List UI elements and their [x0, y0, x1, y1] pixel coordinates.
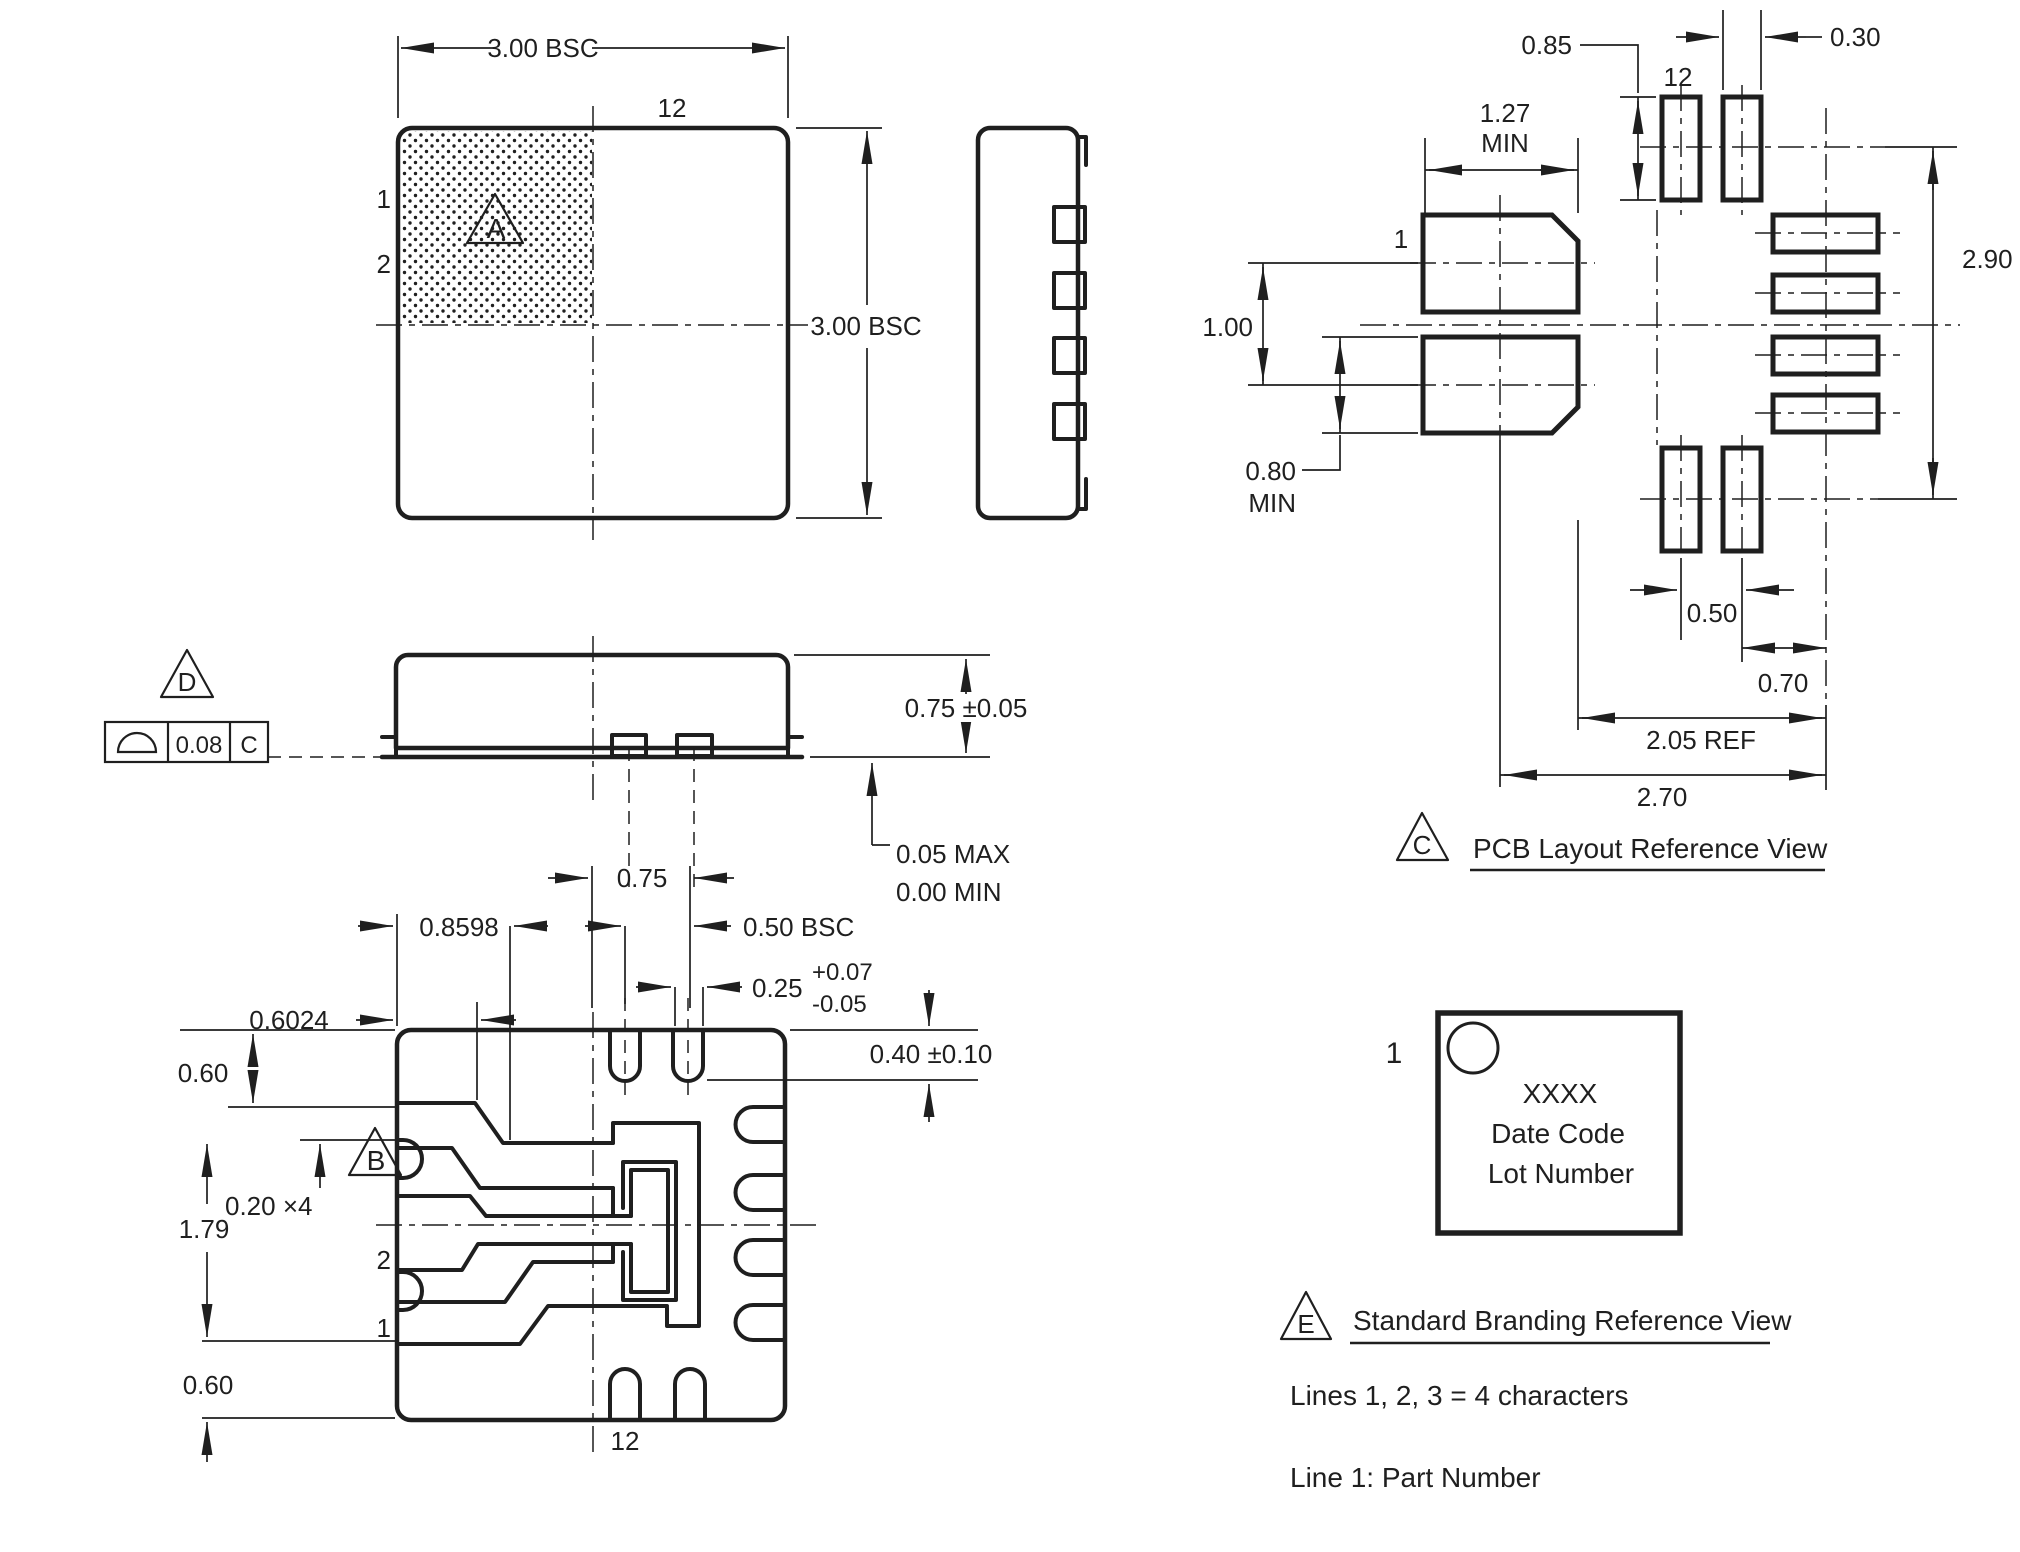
- flag-d-label: D: [178, 667, 197, 697]
- dim-big-pad-pitch: 1.00: [1202, 312, 1253, 342]
- right-slot: [736, 1240, 785, 1275]
- leadframe-mid-lead: [398, 1196, 631, 1270]
- side-view-body: [978, 128, 1078, 518]
- dim-span-h: 2.70: [1637, 782, 1688, 812]
- dim-line: [1248, 263, 1418, 385]
- dim-lead-offset: 0.8598: [419, 912, 499, 942]
- pcb-pin1-label: 1: [1394, 224, 1408, 254]
- bottom-view-pin2-label: 2: [377, 1245, 391, 1275]
- dim-big-pad-width-qual: MIN: [1248, 488, 1296, 518]
- dim-big-pad-len: 1.27: [1480, 98, 1531, 128]
- bottom-view-pin1-label: 1: [377, 1313, 391, 1343]
- bottom-slot: [610, 1369, 640, 1418]
- extension-lines: [1723, 10, 1761, 90]
- branding-note2: Line 1: Part Number: [1290, 1462, 1541, 1493]
- package-drawing-page: A 1 2 12 3.00 BSC 3.00 BSC: [0, 0, 2020, 1552]
- dim-body-height: 0.75 ±0.05: [905, 693, 1028, 723]
- dim-big-pad-len-qual: MIN: [1481, 128, 1529, 158]
- leadframe-top-lead: [398, 1103, 613, 1188]
- side-lead: [1054, 338, 1085, 373]
- flag-a-label: A: [487, 213, 506, 244]
- extension-lines: [397, 914, 625, 1140]
- dim-standoff-min: 0.00 MIN: [896, 877, 1002, 907]
- dim-big-pad-width: 0.80: [1245, 456, 1296, 486]
- dim-jog: 0.20 ×4: [225, 1191, 312, 1221]
- pcb-view-title: PCB Layout Reference View: [1473, 833, 1828, 864]
- dim-top-width: 3.00 BSC: [487, 33, 598, 63]
- side-view: [978, 128, 1086, 518]
- dim-slot-depth: 0.40 ±0.10: [870, 1039, 993, 1069]
- dim-slot-width: 0.25: [752, 973, 803, 1003]
- mid-lead-t-head: [631, 1170, 668, 1292]
- dim-pitch: 0.50: [1687, 598, 1738, 628]
- mark-line2: Date Code: [1491, 1118, 1625, 1149]
- left-edge-bump: [398, 1272, 422, 1310]
- side-lead: [1054, 273, 1085, 308]
- branding-view: 1 XXXX Date Code Lot Number E Standard B…: [1281, 1013, 1792, 1493]
- bottom-view: B 2 1 12 0.75 0.8598 0.50 BSC 0.6024 0.2…: [178, 863, 996, 1462]
- pcb-pin12-label: 12: [1664, 62, 1693, 92]
- dim-standoff-max: 0.05 MAX: [896, 839, 1010, 869]
- branding-view-title: Standard Branding Reference View: [1353, 1305, 1792, 1336]
- dim-lead-span: 1.79: [179, 1214, 230, 1244]
- dim-pad-len: 0.85: [1521, 30, 1572, 60]
- surface-profile-icon: [118, 733, 156, 752]
- side-lead: [1054, 207, 1085, 242]
- dim-pad-pitch: 0.75: [617, 863, 668, 893]
- front-view-body: [396, 655, 788, 748]
- slot-centerlines: [625, 998, 688, 1095]
- dim-pitch: 0.50 BSC: [743, 912, 854, 942]
- top-view: A 1 2 12 3.00 BSC 3.00 BSC: [376, 33, 928, 540]
- dim-line: [1302, 337, 1418, 470]
- dim-top-clear: 0.60: [178, 1058, 229, 1088]
- drawing-canvas: A 1 2 12 3.00 BSC 3.00 BSC: [0, 0, 2020, 1552]
- dim-span-v: 2.90: [1962, 244, 2013, 274]
- top-view-pin1-label: 1: [377, 184, 391, 214]
- left-edge-bump: [398, 1140, 422, 1178]
- dim-ref: 2.05 REF: [1646, 725, 1756, 755]
- leadframe-pin1-lead: [398, 1262, 667, 1344]
- top-view-pin12-label: 12: [658, 93, 687, 123]
- mark-line3: Lot Number: [1488, 1158, 1634, 1189]
- flag-c-label: C: [1413, 830, 1432, 860]
- dim-bottom-clear: 0.60: [183, 1370, 234, 1400]
- mark-line1: XXXX: [1523, 1078, 1598, 1109]
- dim-center-offset: 0.70: [1758, 668, 1809, 698]
- pcb-layout-view: 0.85 12 0.30 1.27 MIN 1 1.00 0.80 MIN 2.…: [1202, 10, 2012, 870]
- dim-side-height: 3.00 BSC: [810, 311, 921, 341]
- right-slot: [736, 1175, 785, 1210]
- right-slot: [736, 1305, 785, 1340]
- pin1-dot-icon: [1448, 1023, 1498, 1073]
- flag-e-label: E: [1297, 1309, 1314, 1339]
- side-lead: [1054, 404, 1085, 439]
- dim-slot-width-tol-plus: +0.07: [812, 959, 873, 986]
- bottom-view-pin12-label: 12: [611, 1426, 640, 1456]
- branding-pin1-label: 1: [1386, 1037, 1403, 1070]
- dim-pad-width: 0.30: [1830, 22, 1881, 52]
- branding-note1: Lines 1, 2, 3 = 4 characters: [1290, 1380, 1629, 1411]
- dim-line: [1878, 147, 1957, 499]
- top-view-pin2-label: 2: [377, 249, 391, 279]
- fcf-datum: C: [240, 732, 257, 759]
- flag-b-label: B: [367, 1145, 386, 1176]
- extension-lines: [675, 987, 703, 1026]
- right-slot: [736, 1107, 784, 1142]
- bottom-slot: [675, 1369, 705, 1418]
- leader-and-ticks: [1580, 45, 1656, 200]
- front-view: 0.08 C D 0.75 ±0.05 0.05 MAX 0.00 MIN: [105, 636, 1032, 907]
- fcf-tolerance: 0.08: [176, 732, 223, 759]
- dim-slot-width-tol-minus: -0.05: [812, 991, 867, 1018]
